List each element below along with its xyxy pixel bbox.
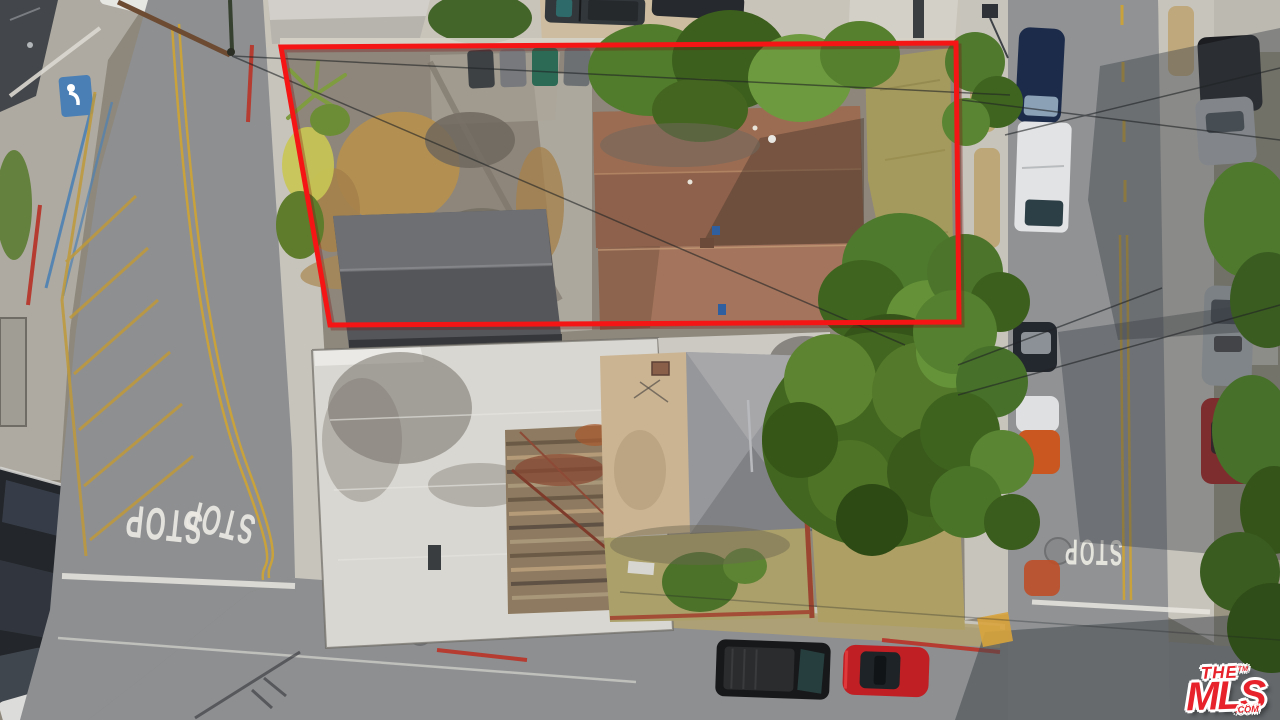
left-mid-structure [0, 318, 26, 426]
white-gate [628, 561, 655, 575]
aerial-photo-stage: STOP STOP STOP [0, 0, 1280, 720]
satellite-dish [768, 135, 776, 143]
lumber-stacks [505, 424, 615, 614]
parked-black-suv [715, 639, 831, 700]
aerial-photo: STOP STOP STOP [0, 0, 1280, 720]
mls-watermark: THETM MLS .COM [1181, 665, 1269, 716]
chimney [700, 238, 714, 248]
blue-bin-parcel-2 [718, 304, 726, 315]
roof-hvac [428, 545, 441, 570]
dark-wall-edge [913, 0, 924, 44]
curb-ramp-yellow-pad [977, 612, 1013, 647]
chimney-2 [652, 362, 669, 375]
tan-roof-house [600, 352, 694, 538]
white-car [1016, 396, 1059, 432]
mls-tm-text: TM [1238, 666, 1248, 673]
blue-bin-parcel-1 [712, 226, 720, 235]
below-parcel [312, 316, 998, 648]
parked-red-car [842, 645, 930, 698]
street-sign [982, 4, 998, 18]
pickup-truck [545, 0, 646, 26]
tree-shadow-dirt [600, 123, 760, 167]
orange-car-2 [1024, 560, 1060, 596]
